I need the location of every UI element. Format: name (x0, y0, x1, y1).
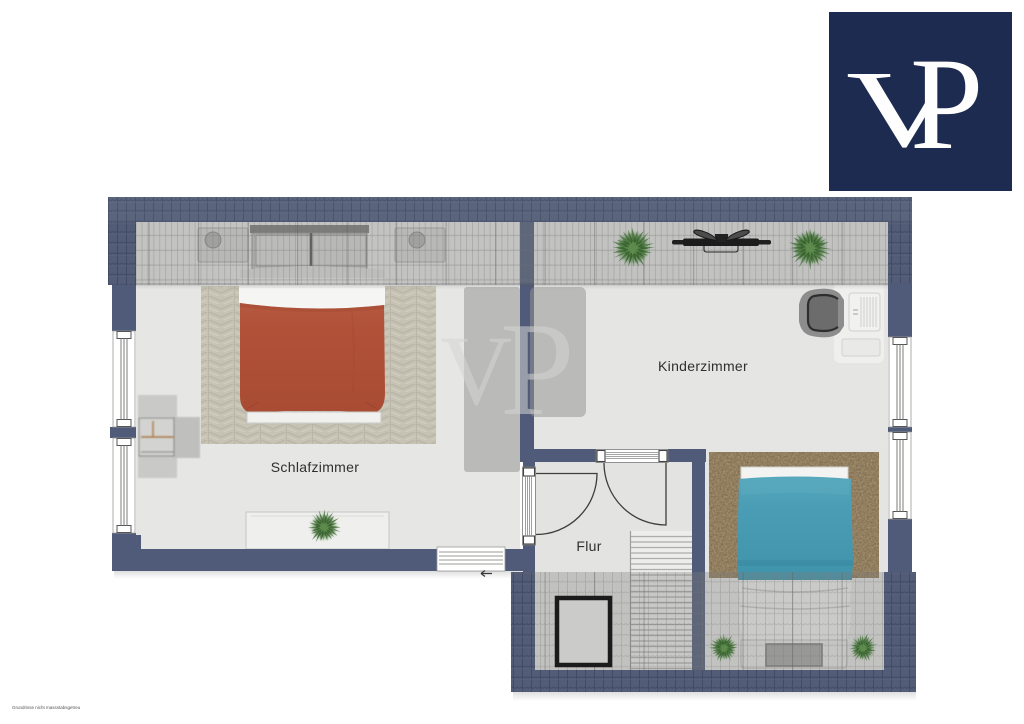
svg-text:Schlafzimmer: Schlafzimmer (271, 459, 359, 475)
svg-text:Kinderzimmer: Kinderzimmer (658, 358, 748, 374)
svg-text:P: P (910, 30, 983, 177)
svg-text:Flur: Flur (576, 538, 601, 554)
svg-text:Grundrisse nicht massstabsgetr: Grundrisse nicht massstabsgetreu (12, 705, 81, 710)
svg-text:P: P (500, 295, 575, 443)
